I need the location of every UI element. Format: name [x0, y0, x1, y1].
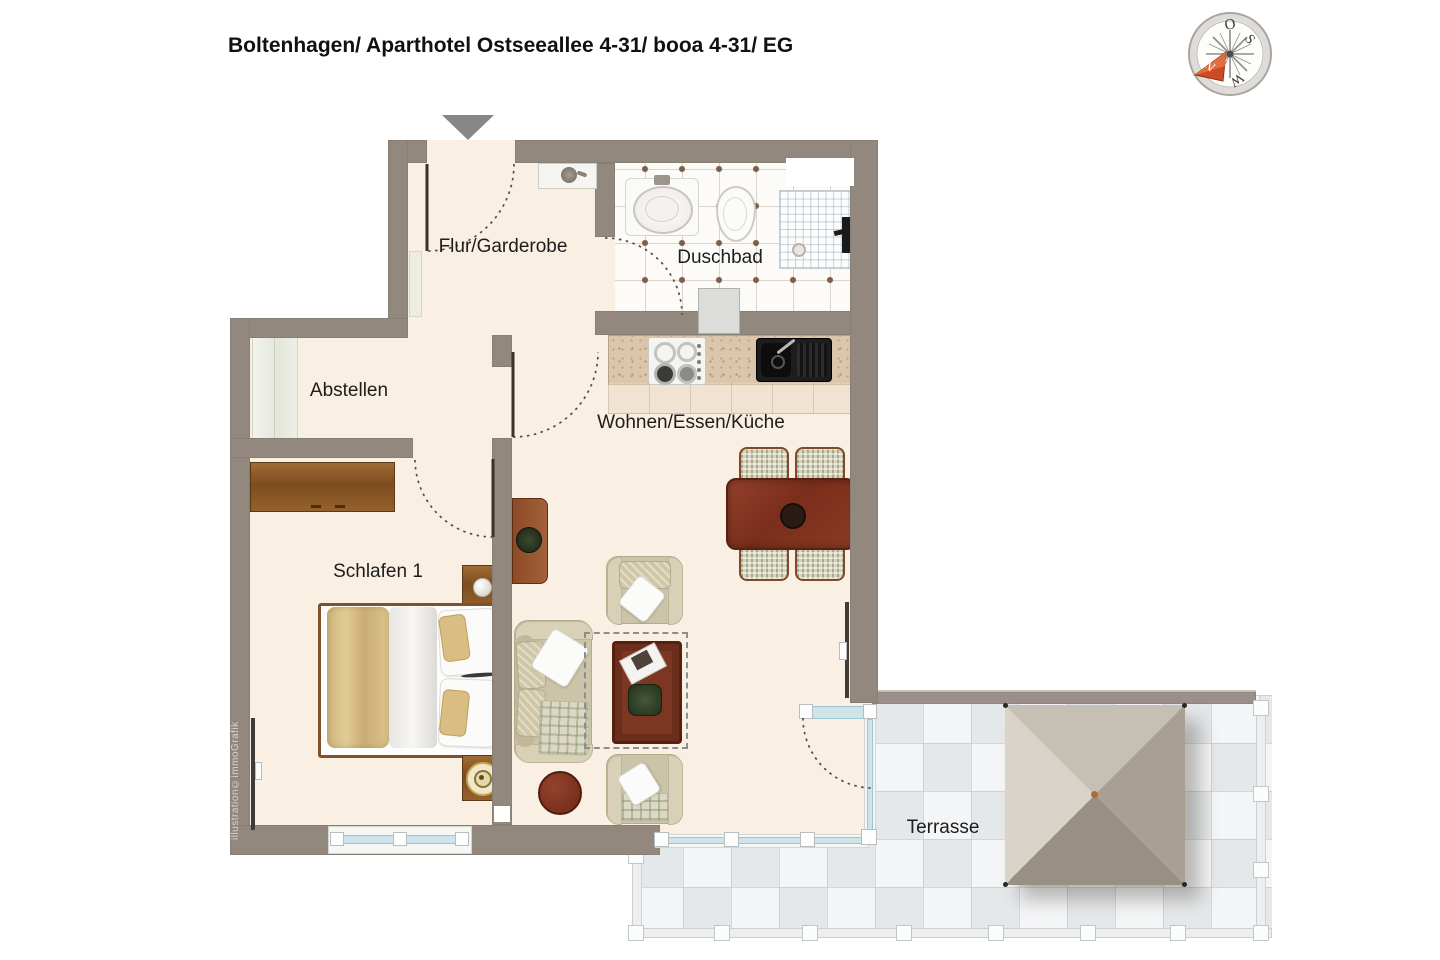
compass-rose: O S W N — [1186, 10, 1274, 98]
railing-post — [802, 925, 818, 941]
bath-door-opening — [598, 237, 615, 311]
wall — [492, 438, 512, 825]
tv-cabinet — [512, 498, 548, 584]
railing-post — [628, 925, 644, 941]
door-cap — [863, 704, 877, 719]
accent-pillow — [439, 689, 471, 738]
parasol-corner — [1003, 882, 1008, 887]
armchair — [606, 754, 682, 824]
railing-post — [1253, 786, 1269, 802]
window-handle — [393, 832, 407, 846]
window-corner — [861, 829, 877, 845]
shower — [779, 190, 857, 269]
wall — [595, 163, 615, 237]
room-label-wohnen: Wohnen/Essen/Küche — [588, 412, 794, 434]
window-handle — [800, 832, 815, 847]
bedroom-door-opening — [413, 438, 492, 458]
kitchen-cabinets — [608, 383, 852, 414]
wall-niche — [494, 806, 510, 822]
vase-icon — [473, 578, 492, 597]
window — [867, 719, 873, 839]
hall-wall-fixture — [538, 163, 597, 189]
room-label-abstellen: Abstellen — [297, 380, 401, 402]
bathroom-cabinet — [698, 288, 740, 334]
railing-post — [988, 925, 1004, 941]
wall — [230, 318, 408, 338]
room-label-schlafen: Schlafen 1 — [326, 561, 430, 583]
plant-icon — [628, 684, 662, 716]
room-label-flur: Flur/Garderobe — [413, 236, 593, 258]
room-label-terrasse: Terrasse — [897, 817, 989, 839]
floor-hallway-lower — [408, 163, 512, 458]
coffee-table — [612, 641, 682, 744]
door-cap — [799, 704, 813, 719]
parasol-corner — [1182, 882, 1187, 887]
dining-table — [726, 478, 856, 550]
faucet-icon — [654, 175, 670, 185]
terrace-north-wall — [872, 690, 1256, 704]
terrace-railing-left — [632, 852, 642, 934]
page-title: Boltenhagen/ Aparthotel Ostseeallee 4-31… — [228, 34, 793, 58]
window-handle — [455, 832, 469, 846]
bathroom-sink — [625, 178, 699, 236]
parasol-center — [1091, 791, 1098, 798]
window — [658, 837, 866, 844]
railing-post — [1253, 862, 1269, 878]
wall — [492, 335, 512, 367]
window-handle — [255, 762, 262, 780]
window-handle — [839, 642, 847, 660]
wall — [388, 140, 408, 338]
kitchen-sink — [756, 338, 832, 382]
window-handle — [724, 832, 739, 847]
plant-icon — [516, 527, 542, 553]
sheet — [389, 607, 437, 748]
railing-post — [1253, 925, 1269, 941]
fixture-valve-icon — [561, 167, 577, 183]
shower-drain-icon — [792, 243, 806, 257]
bathroom-window-niche — [786, 158, 854, 186]
sideboard — [250, 462, 395, 512]
railing-post — [1170, 925, 1186, 941]
railing-post — [896, 925, 912, 941]
sofa — [514, 620, 592, 762]
wall — [850, 140, 878, 703]
kitchen-stove — [648, 337, 706, 385]
parasol-corner — [1003, 703, 1008, 708]
window-handle — [654, 832, 669, 847]
railing-post — [714, 925, 730, 941]
parasol-corner — [1182, 703, 1187, 708]
floorplan-page: Boltenhagen/ Aparthotel Ostseeallee 4-31… — [0, 0, 1440, 960]
watermark: illustration©immoGrafik — [230, 690, 241, 840]
side-table — [538, 771, 582, 815]
terrace-railing-right — [1256, 700, 1266, 934]
double-bed — [318, 603, 506, 758]
storage-shelf — [252, 336, 298, 440]
wall — [230, 438, 413, 458]
room-label-duschbad: Duschbad — [662, 247, 778, 269]
railing-post — [1253, 700, 1269, 716]
entrance-arrow-icon — [442, 115, 494, 140]
railing-post — [1080, 925, 1096, 941]
window-handle — [330, 832, 344, 846]
armchair — [606, 556, 682, 624]
hall-closet — [409, 251, 422, 317]
blanket — [327, 607, 389, 748]
bowl-icon — [780, 503, 806, 529]
entrance-opening — [427, 140, 515, 163]
